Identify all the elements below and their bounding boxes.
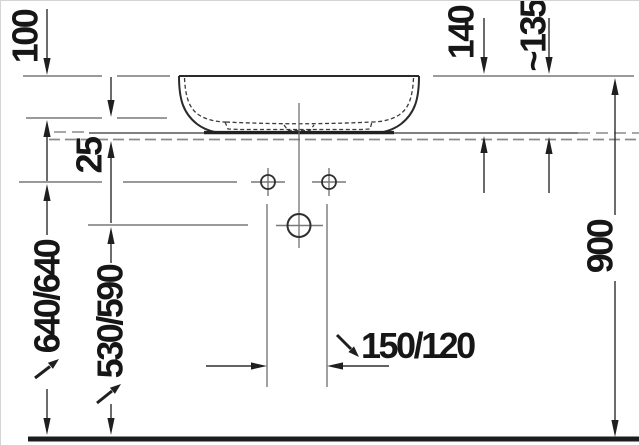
basin-inner-left-profile (185, 78, 227, 122)
washbasin-dimension-diagram: 100 25 140 ~135 640/640 530/590 900 150/… (1, 1, 640, 446)
dim-label-140: 140 (441, 5, 482, 59)
left-hole-crosshair (251, 168, 285, 196)
technical-drawing-canvas: 100 25 140 ~135 640/640 530/590 900 150/… (0, 0, 640, 446)
arrow-up-icon (107, 227, 114, 244)
basin-right-wall (379, 76, 419, 133)
right-hole-crosshair (312, 168, 346, 196)
arrow-left-icon (327, 362, 343, 369)
dim-label-135: ~135 (513, 1, 554, 72)
dimension-labels: 100 25 140 ~135 640/640 530/590 900 150/… (5, 1, 621, 378)
arrow-down-icon (611, 420, 618, 437)
diagonal-arrows (35, 335, 359, 403)
arrow-down-icon (43, 418, 50, 435)
dimension-arrowheads (43, 57, 618, 437)
dim-label-900: 900 (580, 219, 621, 273)
dim-label-530: 530/590 (90, 264, 131, 378)
arrow-up-icon (43, 184, 50, 201)
dim-label-640: 640/640 (27, 239, 68, 353)
basin-inner-right-profile (372, 78, 414, 122)
dim-label-100: 100 (5, 9, 46, 63)
dim-label-150: 150/120 (361, 325, 475, 366)
arrow-down-icon (107, 100, 114, 117)
arrow-up-icon (611, 78, 618, 95)
arrow-down-icon (107, 418, 114, 435)
dim-label-25: 25 (69, 136, 110, 174)
washbasin-outline (179, 76, 419, 248)
basin-left-wall (179, 76, 219, 133)
arrow-up-icon (480, 136, 487, 153)
leader-arrow-icon (337, 335, 351, 349)
adjustable-arrow-icon (35, 367, 50, 379)
arrow-up-icon (43, 120, 50, 137)
adjustable-arrow-icon (97, 391, 112, 403)
arrow-right-icon (251, 362, 267, 369)
